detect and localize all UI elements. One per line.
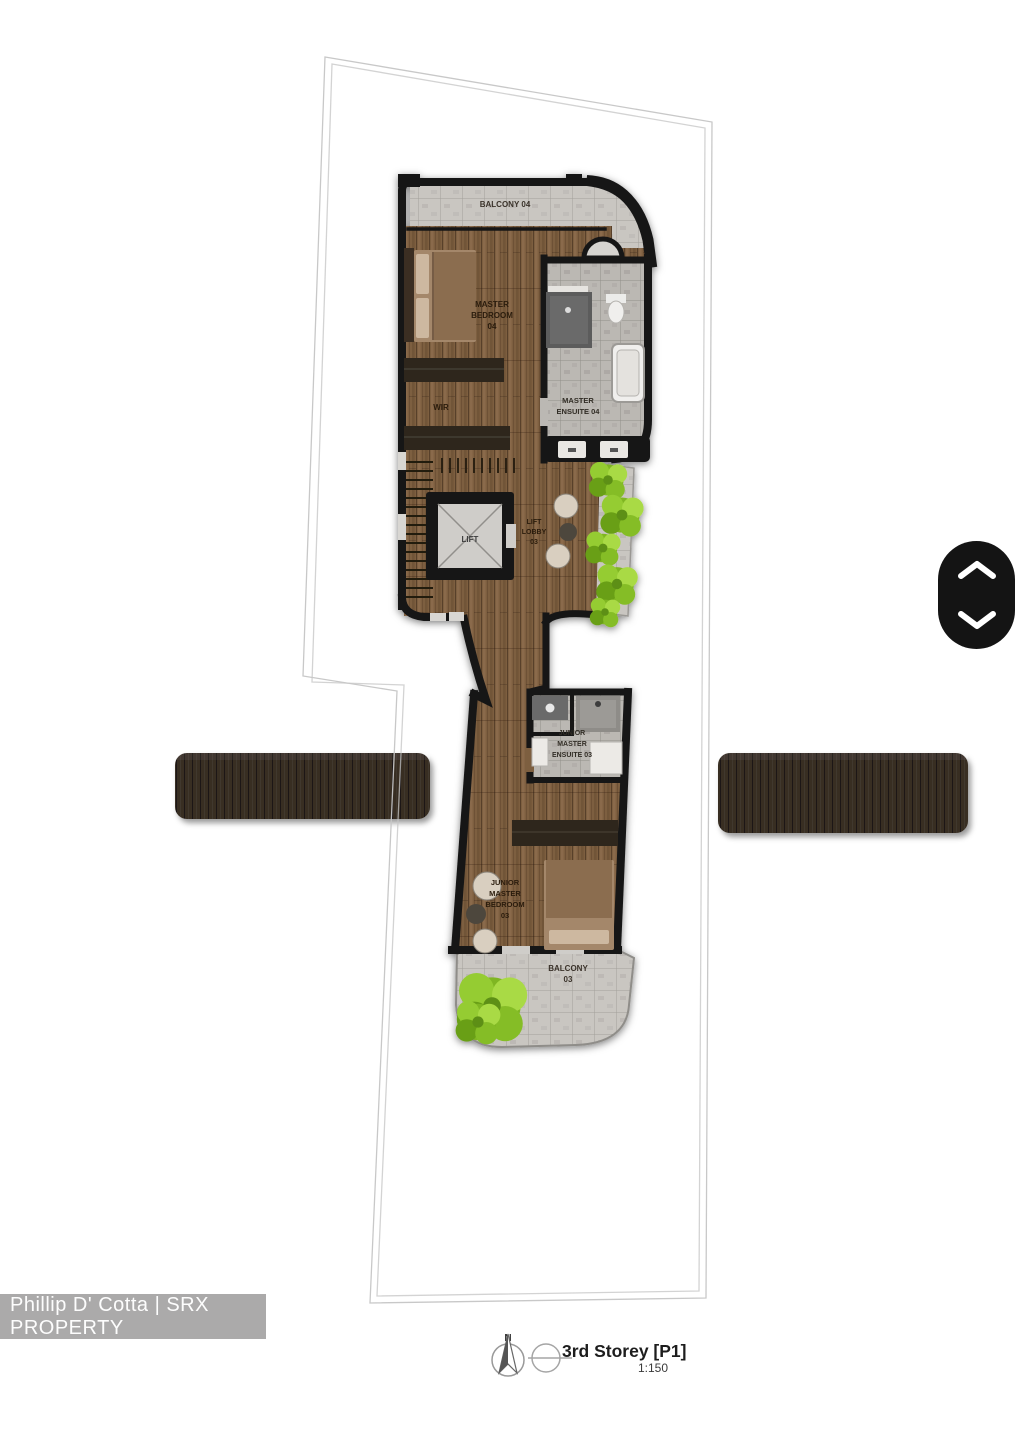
label-junior-bedroom: JUNIOR <box>491 878 520 887</box>
watermark-text: Phillip D' Cotta | SRX PROPERTY <box>10 1294 266 1340</box>
label-lift-lobby: LOBBY <box>522 529 547 536</box>
label-master-bedroom: MASTER <box>475 300 509 309</box>
chevron-up-icon <box>954 560 1000 580</box>
master-bed <box>404 248 476 342</box>
label-balcony-03: BALCONY <box>548 964 588 973</box>
north-compass-icon: N <box>492 1333 524 1376</box>
watermark-bar: Phillip D' Cotta | SRX PROPERTY <box>0 1294 266 1339</box>
planter-greenery <box>585 462 643 627</box>
label-balcony-03: 03 <box>564 975 573 984</box>
label-wir: WIR <box>433 403 449 412</box>
plan-caption: N 3rd Storey [P1] 1:150 <box>492 1333 686 1376</box>
floorplan-image: BALCONY 04 MASTER BEDROOM 04 WIR MASTER … <box>0 0 1022 1440</box>
floor-title: 3rd Storey [P1] <box>562 1341 686 1361</box>
label-junior-bedroom: BEDROOM <box>485 900 524 909</box>
label-junior-ensuite: ENSUITE 03 <box>552 752 592 759</box>
image-navigation <box>938 541 1015 649</box>
label-junior-ensuite: MASTER <box>557 741 587 748</box>
label-balcony-04: BALCONY 04 <box>480 200 531 209</box>
floorplan-page: BALCONY 04 MASTER BEDROOM 04 WIR MASTER … <box>0 0 1022 1440</box>
label-junior-bedroom: 03 <box>501 911 509 920</box>
label-junior-bedroom: MASTER <box>489 889 521 898</box>
pergola-slab-right <box>718 753 968 833</box>
label-junior-ensuite: JUNIOR <box>559 730 585 737</box>
label-lift-lobby: 03 <box>530 539 538 546</box>
scroll-down-button[interactable] <box>938 603 1015 637</box>
label-master-bedroom: 04 <box>488 322 497 331</box>
label-lift: LIFT <box>462 535 479 544</box>
label-master-ensuite: ENSUITE 04 <box>557 407 601 416</box>
floor-scale: 1:150 <box>638 1361 668 1375</box>
label-master-ensuite: MASTER <box>562 396 594 405</box>
chevron-down-icon <box>954 610 1000 630</box>
scroll-up-button[interactable] <box>938 553 1015 587</box>
label-master-bedroom: BEDROOM <box>471 311 513 320</box>
balcony-greenery <box>456 973 528 1044</box>
label-lift-lobby: LIFT <box>527 519 542 526</box>
